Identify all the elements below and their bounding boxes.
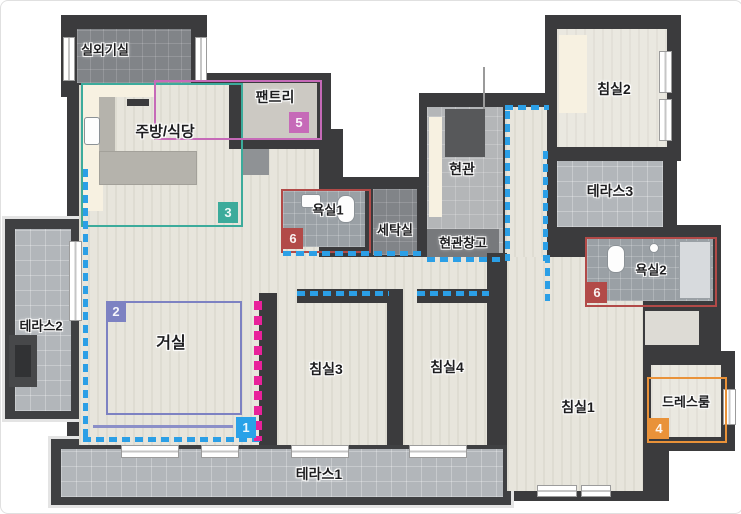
bedroom1-window-right (581, 485, 611, 497)
zone-box-2-living[interactable] (106, 301, 242, 415)
dash-living-left (83, 169, 88, 439)
entrance-door (429, 117, 442, 217)
dash-hallway-right (543, 151, 548, 261)
outdoor-unit-vent-right (195, 37, 207, 81)
living-curtain-line (93, 425, 233, 428)
floor-hallway (505, 107, 547, 261)
terrace2-window (69, 241, 82, 321)
label-pantry: 팬트리 (256, 87, 295, 107)
duct-below-pantry (243, 149, 269, 175)
label-terrace1: 테라스1 (296, 464, 342, 484)
wall-bedroom4-right (487, 253, 507, 445)
terrace2-ac-unit-inner (15, 345, 31, 377)
bedroom2-closet (559, 35, 587, 113)
entrance-door-arrow (483, 67, 485, 109)
bedroom4-window (409, 445, 467, 458)
badge-zone-6-bath1[interactable]: 6 (283, 228, 303, 249)
dash-bedroom3-top (297, 291, 389, 296)
label-living: 거실 (156, 329, 185, 353)
badge-zone-2[interactable]: 2 (106, 301, 126, 322)
living-window-right (201, 445, 239, 458)
dash-storage-bottom (427, 257, 503, 262)
label-entrance: 현관 (449, 159, 475, 179)
badge-zone-5[interactable]: 5 (289, 112, 309, 133)
bedroom2-window-upper (659, 51, 672, 93)
badge-zone-4[interactable]: 4 (649, 418, 669, 439)
entrance-shaft (445, 109, 485, 157)
badge-zone-3[interactable]: 3 (218, 202, 238, 223)
wall-bedroom3-bedroom4 (387, 289, 403, 445)
dash-hallway-top (505, 105, 549, 110)
dash-bedroom4-top (417, 291, 489, 296)
floorplan: 3 5 6 6 2 1 4 실외기실 주방/식당 팬트리 욕실1 세탁실 현관 … (0, 0, 741, 514)
label-entrance-storage: 현관창고 (439, 233, 487, 252)
dash-hallway-left (505, 111, 510, 261)
label-terrace3: 테라스3 (587, 181, 633, 201)
dash-bath2-left (545, 255, 550, 301)
label-bath2: 욕실2 (635, 260, 666, 279)
label-laundry: 세탁실 (377, 220, 413, 239)
badge-zone-1[interactable]: 1 (236, 417, 256, 438)
badge-zone-6-bath2[interactable]: 6 (587, 282, 607, 303)
bedroom1-window-left (537, 485, 577, 497)
label-outdoor-unit: 실외기실 (81, 40, 129, 59)
label-bath1: 욕실1 (312, 200, 343, 219)
living-window-left (121, 445, 179, 458)
bedroom3-window (291, 445, 349, 458)
dash-living-bottom (83, 437, 261, 442)
dash-bath-strip-bottom (283, 251, 421, 256)
label-bedroom2: 침실2 (597, 79, 631, 99)
label-bedroom1: 침실1 (561, 397, 595, 417)
label-dressroom: 드레스룸 (662, 392, 710, 411)
label-bedroom3: 침실3 (309, 359, 343, 379)
label-bedroom4: 침실4 (430, 357, 464, 377)
label-kitchen: 주방/식당 (135, 121, 194, 142)
bathroom-sink-cabinet (643, 309, 701, 347)
outdoor-unit-vent-left (63, 37, 75, 81)
bedroom2-window-lower (659, 99, 672, 141)
label-terrace2: 테라스2 (19, 316, 62, 335)
